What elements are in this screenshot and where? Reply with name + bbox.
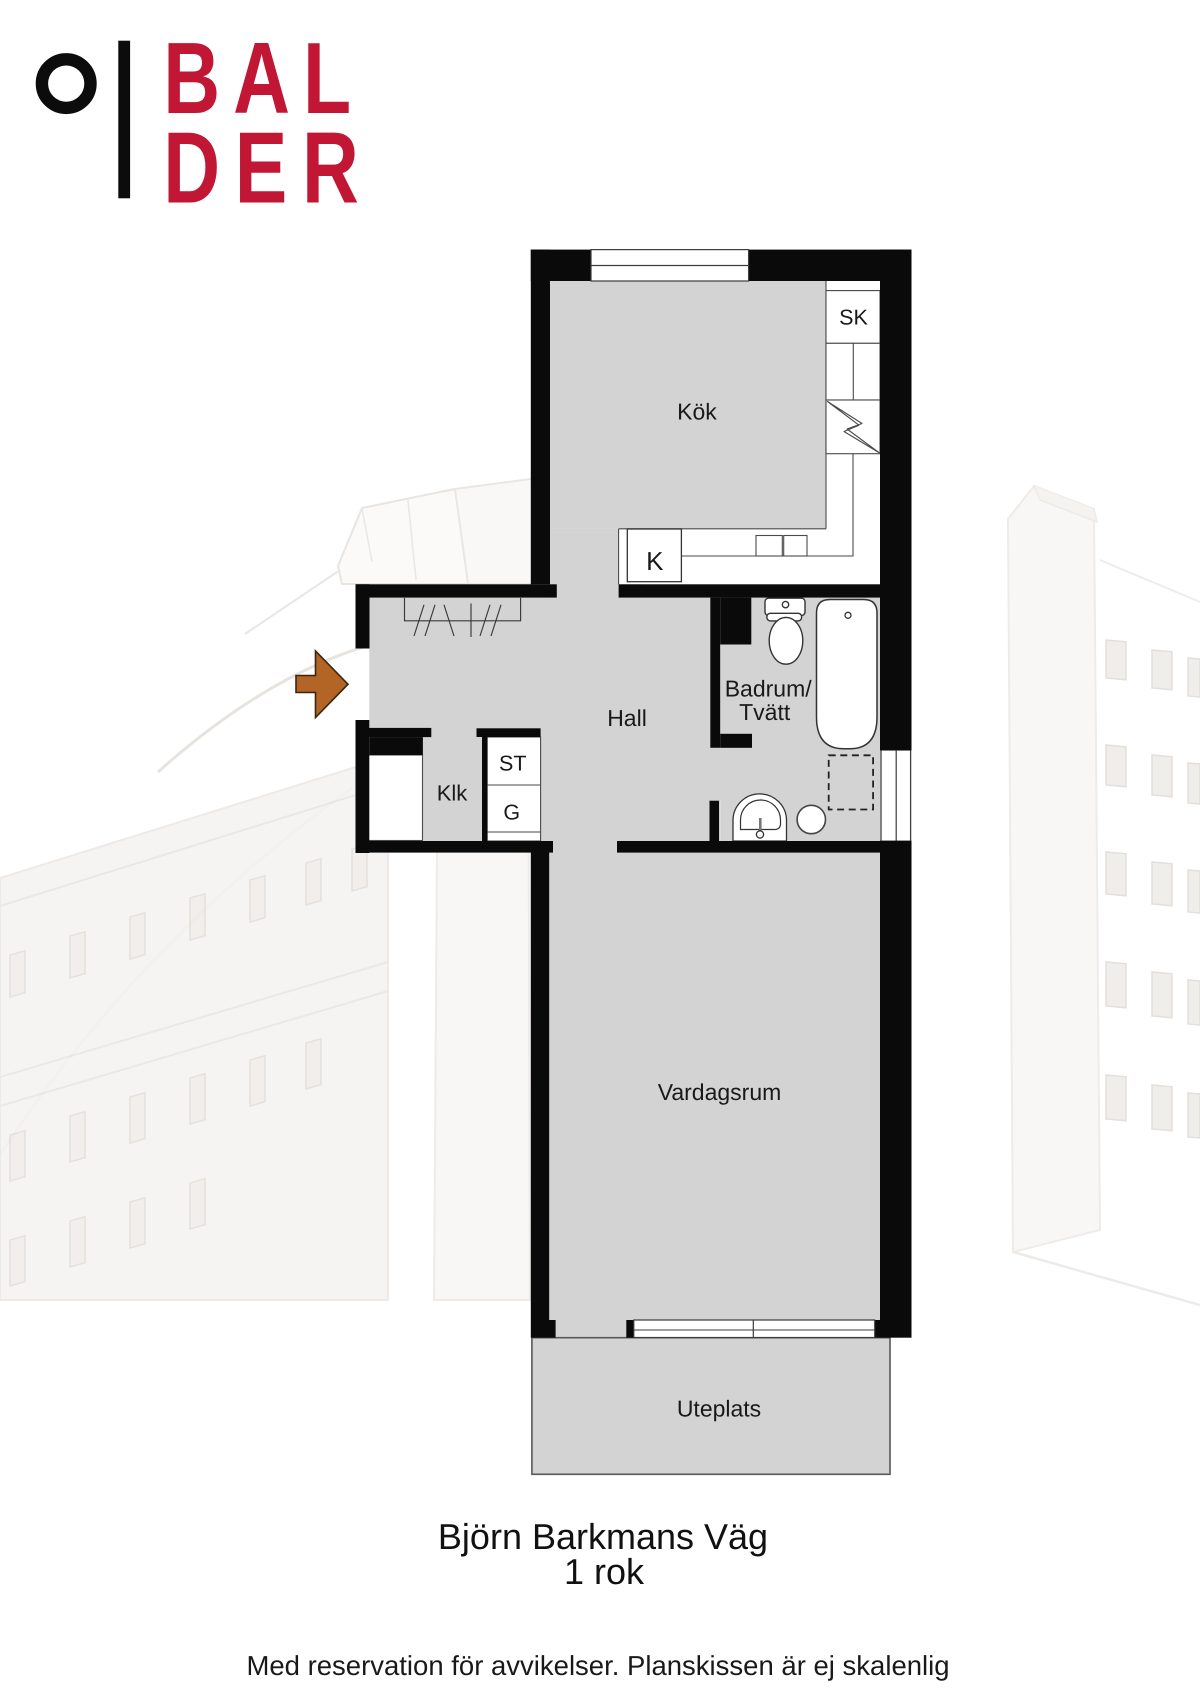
svg-text:Med reservation för avvikelser: Med reservation för avvikelser. Planskis… [246, 1650, 949, 1681]
svg-text:Badrum/: Badrum/ [725, 675, 813, 701]
svg-text:K: K [646, 546, 664, 576]
svg-text:Tvätt: Tvätt [739, 699, 791, 725]
svg-text:Vardagsrum: Vardagsrum [658, 1079, 782, 1105]
svg-text:ST: ST [499, 752, 526, 776]
svg-text:Uteplats: Uteplats [677, 1395, 761, 1421]
svg-text:SK: SK [839, 306, 868, 330]
svg-text:Hall: Hall [607, 705, 647, 731]
svg-text:DER: DER [163, 112, 373, 225]
svg-text:Kök: Kök [677, 398, 717, 424]
svg-text:Klk: Klk [437, 781, 469, 806]
svg-text:G: G [503, 800, 520, 824]
svg-text:1 rok: 1 rok [564, 1551, 645, 1592]
